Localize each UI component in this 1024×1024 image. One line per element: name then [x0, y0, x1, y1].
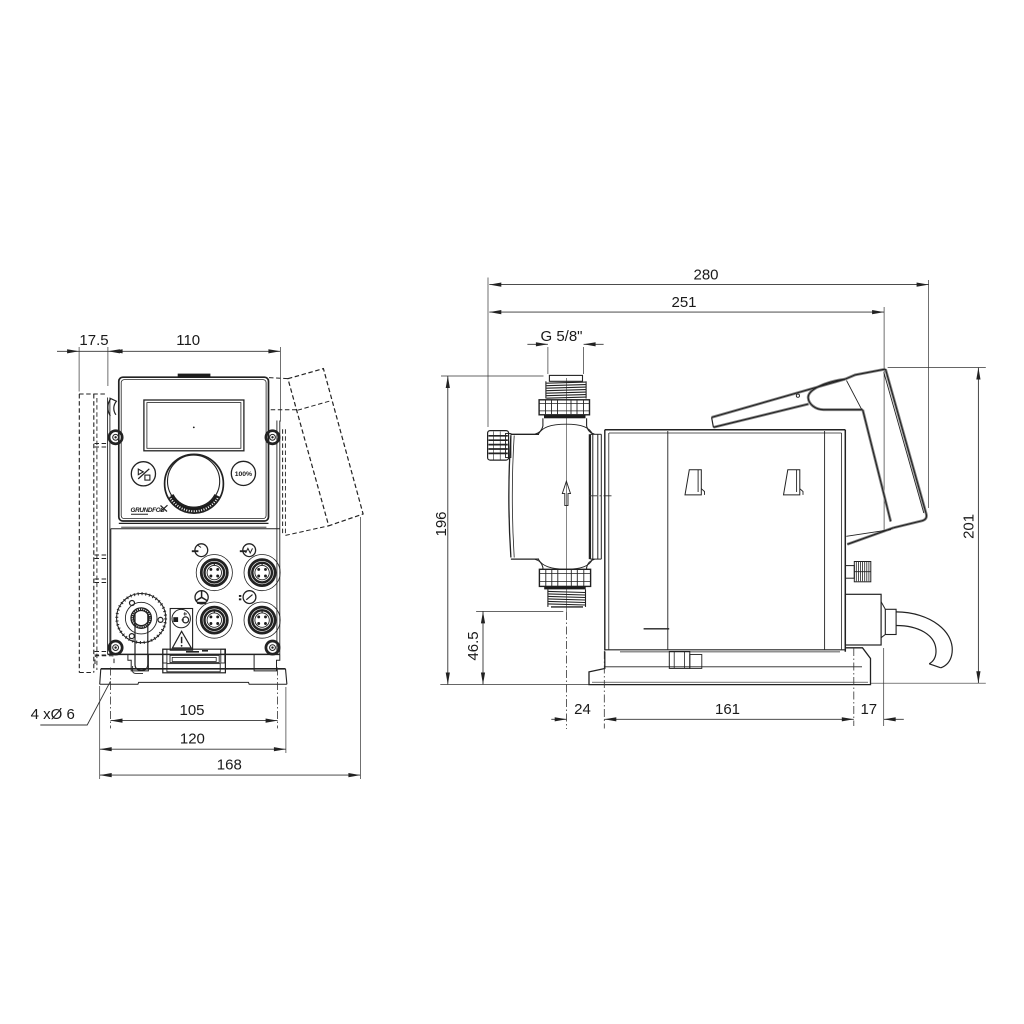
svg-text:161: 161	[715, 701, 740, 718]
svg-text:100%: 100%	[235, 471, 252, 478]
svg-text:G 5/8": G 5/8"	[540, 328, 582, 345]
svg-text:110: 110	[176, 332, 200, 349]
svg-text:4 xØ 6: 4 xØ 6	[31, 706, 75, 723]
svg-text:280: 280	[693, 267, 718, 284]
svg-text:17: 17	[860, 701, 877, 718]
svg-text:GRUNDFOS: GRUNDFOS	[131, 507, 166, 514]
svg-text:201: 201	[960, 514, 977, 539]
svg-text:17.5: 17.5	[79, 332, 108, 349]
svg-text:46.5: 46.5	[465, 631, 482, 660]
svg-text:120: 120	[180, 730, 205, 747]
svg-text:196: 196	[433, 511, 450, 536]
svg-text:105: 105	[179, 702, 204, 719]
svg-text:251: 251	[671, 294, 696, 311]
svg-text:168: 168	[217, 756, 242, 773]
svg-text:24: 24	[574, 701, 591, 718]
